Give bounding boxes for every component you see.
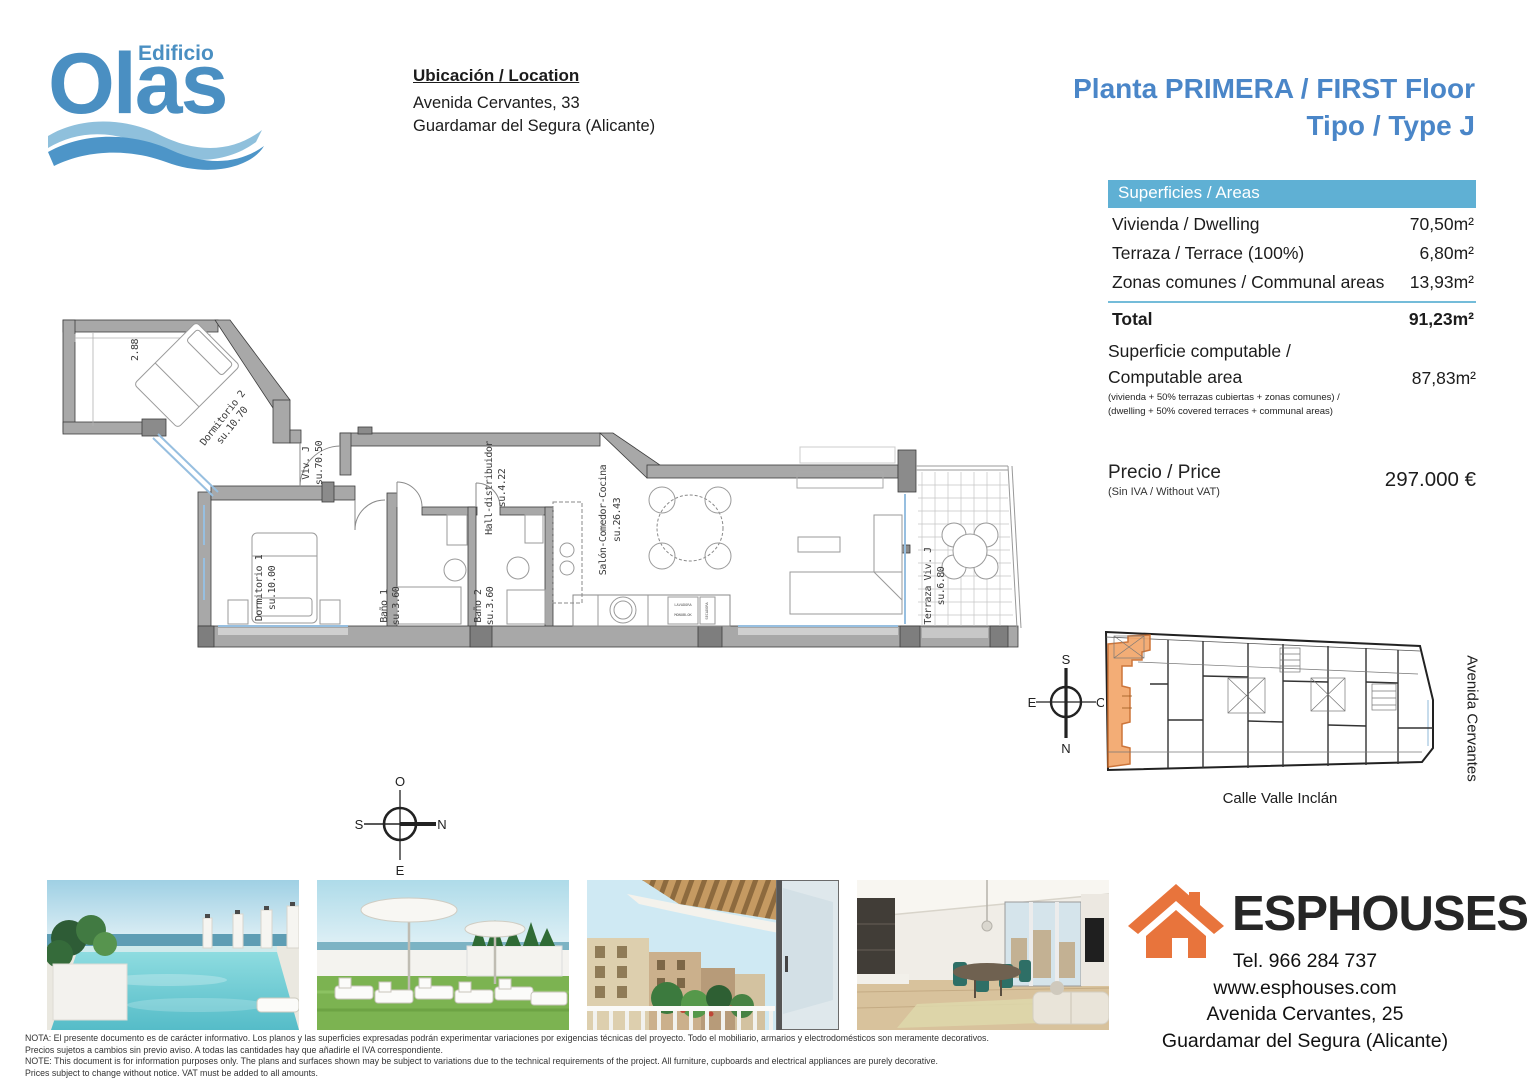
room-label: Hall-distribuidor (484, 441, 495, 535)
contact-tel: Tel. 966 284 737 (1135, 948, 1475, 975)
appliance-label: LAVADORA (674, 603, 692, 607)
siteplan-compass-icon: S O N E (1028, 652, 1104, 756)
esphouses-wordmark: ESPHOUSES (1232, 886, 1527, 942)
total-value: 91,23m² (1409, 309, 1474, 330)
room-area-label: su.3.60 (391, 586, 402, 625)
table-row: Terraza / Terrace (100%) 6,80m² (1108, 237, 1476, 266)
computable-label2: Computable area (1108, 364, 1340, 390)
room-area-label: su.26.43 (612, 497, 623, 542)
contact-address1: Avenida Cervantes, 25 (1135, 1001, 1475, 1028)
total-row: Total 91,23m² (1108, 301, 1476, 332)
area-label: Vivienda / Dwelling (1112, 214, 1260, 235)
table-row: Zonas comunes / Communal areas 13,93m² (1108, 266, 1476, 295)
floor-plan: 2.88 (50, 298, 1040, 668)
computable-note1: (vivienda + 50% terrazas cubiertas + zon… (1108, 392, 1340, 404)
page-title: Planta PRIMERA / FIRST Floor Tipo / Type… (875, 70, 1475, 144)
location-heading: Ubicación / Location (413, 66, 743, 86)
room-area-label: su.6.80 (936, 566, 947, 605)
legal-notes: NOTA: El presente documento es de caráct… (25, 1033, 1025, 1079)
photo-interior-living (857, 880, 1109, 1030)
edificio-olas-logo: Edificio Olas (46, 26, 266, 166)
table-row: Vivienda / Dwelling 70,50m² (1108, 208, 1476, 237)
area-value: 6,80m² (1420, 243, 1474, 264)
note-line: NOTA: El presente documento es de caráct… (25, 1033, 1025, 1045)
photo-rooftop-pool (47, 880, 299, 1030)
area-value: 70,50m² (1410, 214, 1474, 235)
room-label: Dormitorio 1 (254, 554, 265, 621)
computable-value: 87,83m² (1412, 368, 1476, 389)
room-area-label: su.10.00 (267, 565, 278, 610)
appliance-label: MONOBLOK (674, 613, 692, 617)
contact-address2: Guardamar del Segura (Alicante) (1135, 1028, 1475, 1055)
areas-table: Superficies / Areas Vivienda / Dwelling … (1108, 180, 1476, 418)
compass-rose-icon: O N E S (352, 772, 448, 880)
compass-s: E (396, 863, 405, 878)
brochure-page: Edificio Olas Ubicación / Location Aveni… (0, 0, 1527, 1080)
site-plan (1098, 620, 1448, 790)
contact-block: Tel. 966 284 737 www.esphouses.com Aveni… (1135, 948, 1475, 1054)
areas-header: Superficies / Areas (1108, 180, 1476, 208)
computable-row: Superficie computable / Computable area … (1108, 338, 1476, 418)
compass-n: N (1061, 741, 1070, 756)
page-title-line1: Planta PRIMERA / FIRST Floor (875, 70, 1475, 107)
compass-e: N (437, 817, 446, 832)
room-label: Baño 1 (379, 589, 390, 623)
area-label: Zonas comunes / Communal areas (1112, 272, 1384, 293)
appliance-label: SECADORA (705, 602, 709, 620)
photo-balcony-street-view (587, 880, 839, 1030)
street-label-calle-valle-inclan: Calle Valle Inclán (1150, 790, 1410, 807)
area-label: Terraza / Terrace (100%) (1112, 243, 1304, 264)
dimension-value: 2.88 (130, 338, 141, 361)
street-label-avenida-cervantes: Avenida Cervantes (1464, 639, 1481, 799)
price-value: 297.000 € (1385, 468, 1476, 492)
price-label: Precio / Price (1108, 462, 1221, 484)
contact-web[interactable]: www.esphouses.com (1135, 975, 1475, 1002)
computable-note2: (dwelling + 50% covered terraces + commu… (1108, 406, 1340, 418)
note-line: Precios sujetos a cambios sin previo avi… (25, 1045, 1025, 1057)
note-line: Prices subject to change without notice.… (25, 1068, 1025, 1080)
compass-n: O (395, 774, 405, 789)
location-address2: Guardamar del Segura (Alicante) (413, 115, 743, 138)
room-area-label: su.3.60 (485, 586, 496, 625)
total-label: Total (1112, 309, 1153, 330)
photo-rooftop-terrace (317, 880, 569, 1030)
compass-e: E (1028, 695, 1037, 710)
computable-label1: Superficie computable / (1108, 338, 1340, 364)
price-row: Precio / Price (Sin IVA / Without VAT) 2… (1108, 462, 1476, 498)
room-label: Salón-Comedor-Cocina (597, 464, 609, 575)
price-note: (Sin IVA / Without VAT) (1108, 486, 1221, 498)
room-area-label: su.4.22 (497, 468, 508, 507)
room-area-label: su.70.50 (314, 440, 325, 485)
compass-w: S (355, 817, 364, 832)
logo-olas-text: Olas (48, 44, 226, 124)
wave-icon (46, 118, 266, 170)
area-value: 13,93m² (1410, 272, 1474, 293)
page-title-line2: Tipo / Type J (875, 107, 1475, 144)
room-label: Terraza Viv. J (923, 547, 934, 624)
location-address1: Avenida Cervantes, 33 (413, 92, 743, 115)
compass-s: S (1062, 652, 1071, 667)
room-label: Viv. J (301, 446, 312, 479)
room-label: Baño 2 (473, 589, 484, 623)
location-block: Ubicación / Location Avenida Cervantes, … (413, 66, 743, 138)
note-line: NOTE: This document is for information p… (25, 1056, 1025, 1068)
